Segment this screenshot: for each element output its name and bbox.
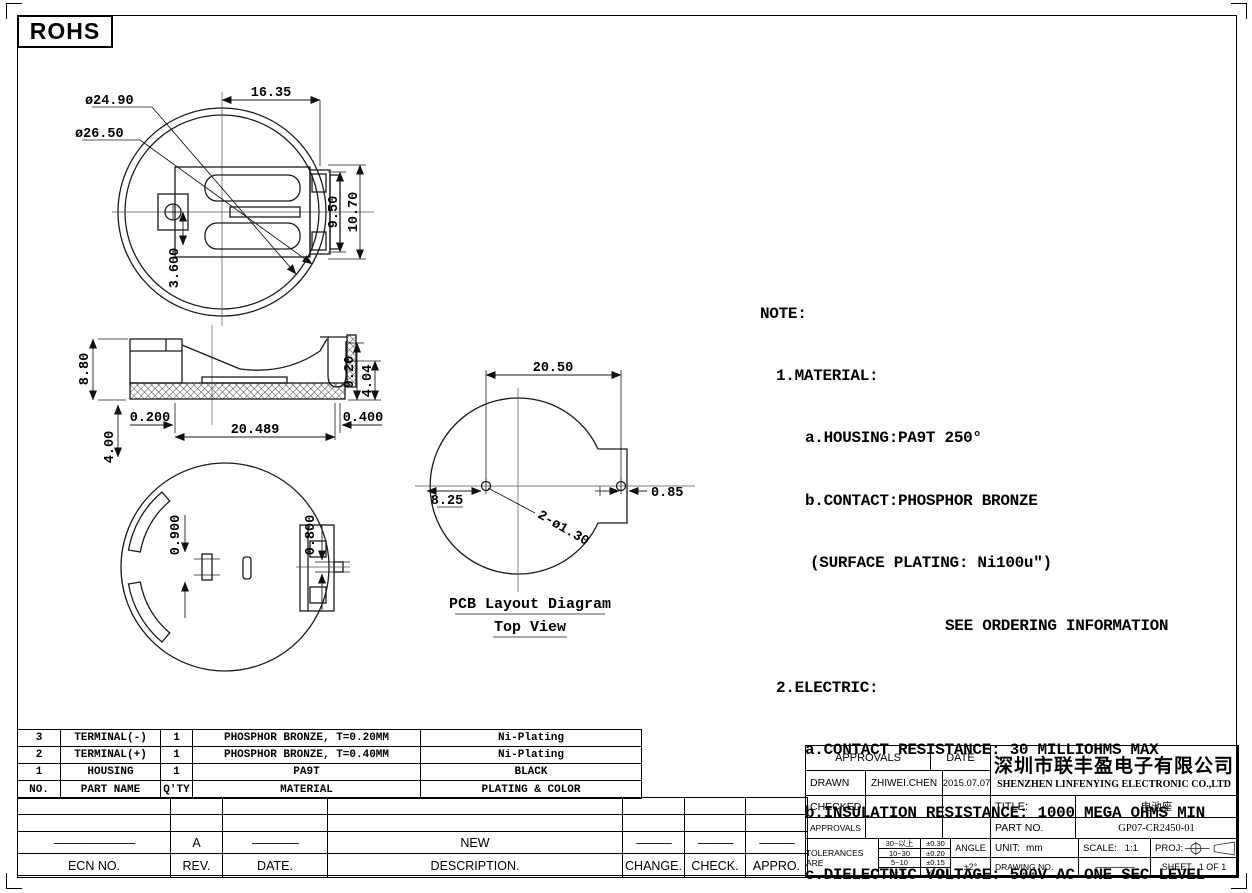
approvals-header: APPROVALS [806, 746, 931, 771]
part-name: TERMINAL(+) [61, 747, 161, 764]
tol-value: ±0.15 [921, 858, 951, 868]
drawingno-value: ———— [1079, 858, 1151, 877]
projection-symbol-icon [1184, 840, 1237, 857]
tol-range: 10~30 [879, 849, 921, 858]
part-no: 2 [18, 747, 61, 764]
dim-pcb-right: 0.85 [651, 486, 683, 501]
drawingno-label: DRAWING NO. [991, 858, 1079, 877]
part-no: 3 [18, 730, 61, 747]
ecn-empty [623, 815, 685, 832]
pcb-captions: PCB Layout Diagram Top View [449, 596, 611, 637]
company-name-en: SHENZHEN LINFENYING ELECTRONIC CO.,LTD [997, 779, 1231, 790]
ecn-header-desc: DESCRIPTION. [328, 854, 623, 877]
tol-range: 30~以上 [879, 839, 921, 849]
part-qty: 1 [161, 764, 193, 781]
drawing-sheet: ROHS 16.35 ø24.90 ø2 [0, 0, 1252, 893]
dim-right-inner: 4.04 [361, 365, 376, 397]
ecn-header-check: CHECK. [685, 854, 746, 877]
angle-label: ANGLE [951, 839, 991, 858]
unit-cell: UNIT: mm [991, 839, 1079, 858]
ecn-empty [685, 798, 746, 815]
part-material: PHOSPHOR BRONZE, T=0.20MM [193, 730, 421, 747]
parts-header-plating: PLATING & COLOR [421, 781, 641, 798]
note-line: b.CONTACT:PHOSPHOR BRONZE [805, 491, 1205, 512]
part-material: PHOSPHOR BRONZE, T=0.40MM [193, 747, 421, 764]
part-plating: Ni-Plating [421, 747, 641, 764]
part-no: 1 [18, 764, 61, 781]
approved-by [866, 818, 943, 839]
title-block: APPROVALS DATE DRAWN ZHIWEI.CHEN 2015.07… [805, 745, 1239, 878]
dim-side-height: 8.80 [78, 353, 93, 385]
ecn-empty [18, 815, 171, 832]
part-name: HOUSING [61, 764, 161, 781]
rev-letter: A [171, 832, 223, 854]
part-material: PA9T [193, 764, 421, 781]
note-line: (SURFACE PLATING: Ni100u″) [810, 553, 1205, 574]
note-title: NOTE: [760, 304, 1205, 325]
rev-appro: ——— [746, 832, 807, 854]
rev-description: NEW [328, 832, 623, 854]
pcb-layout-view: 20.50 8.25 0.85 2-ø1.30 PCB Layout Diagr… [395, 355, 705, 655]
angle-value: ±2° [951, 858, 991, 877]
dim-slot: 3.600 [168, 248, 183, 289]
scale-cell: SCALE: 1:1 [1079, 839, 1151, 858]
partno-label: PART NO. [991, 818, 1076, 839]
ecn-empty [171, 815, 223, 832]
pcb-caption-title: PCB Layout Diagram [449, 596, 611, 613]
sheet-label: SHEET [1162, 862, 1192, 872]
partno-value: GP07-CR2450-01 [1076, 818, 1238, 839]
title-label: TITLE: [991, 796, 1076, 818]
ecn-empty [746, 815, 807, 832]
tol-range: ~ 5 [879, 868, 921, 877]
dim-slot-right: 0.800 [304, 515, 319, 556]
company-name-cn: 深圳市联丰盈电子有限公司 [994, 751, 1234, 778]
ecn-empty [623, 798, 685, 815]
note-line: SEE ORDERING INFORMATION [945, 616, 1205, 637]
drawn-by: ZHIWEI.CHEN [866, 771, 943, 796]
tol-range: 5~10 [879, 858, 921, 868]
parts-header-name: PART NAME [61, 781, 161, 798]
sheet-cell: SHEET 1 OF 1 [1151, 858, 1238, 877]
side-view-outline [130, 325, 356, 425]
bottom-view: 0.900 0.800 [110, 455, 360, 680]
part-qty: 1 [161, 747, 193, 764]
ecn-header-appro: APPRO. [746, 854, 807, 877]
ecn-header-rev: REV. [171, 854, 223, 877]
note-line: 2.ELECTRIC: [776, 678, 1205, 699]
parts-header-qty: Q'TY [161, 781, 193, 798]
pcb-caption-subtitle: Top View [494, 619, 566, 636]
tolerances-label: TOLERANCES ARE [806, 839, 879, 877]
scale-label: SCALE: [1083, 843, 1117, 854]
scale-value: 1:1 [1125, 843, 1138, 854]
dim-right-h2: 10.70 [347, 192, 362, 233]
drawn-date: 2015.07.07 [943, 771, 991, 796]
note-line: 1.MATERIAL: [776, 366, 1205, 387]
approved-label: APPROVALS [806, 818, 866, 839]
dim-span: 20.489 [231, 423, 280, 438]
dim-top-width: 16.35 [251, 86, 292, 101]
part-plating: BLACK [421, 764, 641, 781]
ecn-empty [746, 798, 807, 815]
checked-label: CHECKED [806, 796, 866, 818]
ecn-empty [171, 798, 223, 815]
unit-value: mm [1026, 843, 1043, 854]
dim-slot-left: 0.900 [169, 515, 184, 556]
rohs-label: ROHS [30, 18, 100, 45]
rev-ecn-no: ——————— [18, 832, 171, 854]
drawn-label: DRAWN [806, 771, 866, 796]
ecn-empty [685, 815, 746, 832]
part-plating: Ni-Plating [421, 730, 641, 747]
ecn-empty [328, 798, 623, 815]
checked-date [943, 796, 991, 818]
top-view: 16.35 ø24.90 ø26.50 9.50 10.70 3.600 [40, 80, 380, 330]
approved-date [943, 818, 991, 839]
sheet-value: 1 OF 1 [1199, 862, 1227, 872]
dim-right-outer: 9.20 [343, 356, 358, 388]
ecn-header-no: ECN NO. [18, 854, 171, 877]
part-name: TERMINAL(-) [61, 730, 161, 747]
ecn-empty [328, 815, 623, 832]
projection-cell: PROJ: [1151, 839, 1238, 858]
rev-change: ——— [623, 832, 685, 854]
tol-value: ±0.10 [921, 868, 951, 877]
tol-value: ±0.30 [921, 839, 951, 849]
rev-check: ——— [685, 832, 746, 854]
projection-label: PROJ: [1155, 843, 1183, 854]
rev-date: ———— [223, 832, 328, 854]
ecn-header-change: CHANGE. [623, 854, 685, 877]
parts-header-no: NO. [18, 781, 61, 798]
date-header: DATE [931, 746, 991, 771]
dim-offset-left: 0.200 [130, 411, 171, 426]
dim-hole-span: 20.50 [533, 361, 574, 376]
ecn-empty [223, 798, 328, 815]
dim-right-h1: 9.50 [327, 196, 342, 228]
parts-header-material: MATERIAL [193, 781, 421, 798]
checked-by [866, 796, 943, 818]
pcb-dimensions: 20.50 8.25 0.85 2-ø1.30 [427, 361, 683, 550]
dim-pcb-holes: 2-ø1.30 [535, 508, 592, 549]
title-value: 电池座 [1076, 796, 1238, 818]
ecn-header-date: DATE. [223, 854, 328, 877]
unit-label: UNIT: [995, 843, 1020, 854]
ecn-empty [18, 798, 171, 815]
ecn-empty [223, 815, 328, 832]
tol-value: ±0.20 [921, 849, 951, 858]
note-line: a.HOUSING:PA9T 250° [805, 428, 1205, 449]
part-qty: 1 [161, 730, 193, 747]
revision-table: ——————— A ———— NEW ——— ——— ——— ECN NO. R… [17, 797, 808, 878]
dim-offset-right: 0.400 [343, 411, 384, 426]
bottom-view-outline [121, 463, 350, 671]
rohs-mark: ROHS [17, 15, 113, 48]
parts-list-table: 3 TERMINAL(-) 1 PHOSPHOR BRONZE, T=0.20M… [17, 729, 642, 799]
company-block: 深圳市联丰盈电子有限公司 SHENZHEN LINFENYING ELECTRO… [991, 746, 1238, 796]
side-view-dimensions: 8.80 4.00 0.200 20.489 0.400 9.20 4.04 [78, 339, 383, 463]
